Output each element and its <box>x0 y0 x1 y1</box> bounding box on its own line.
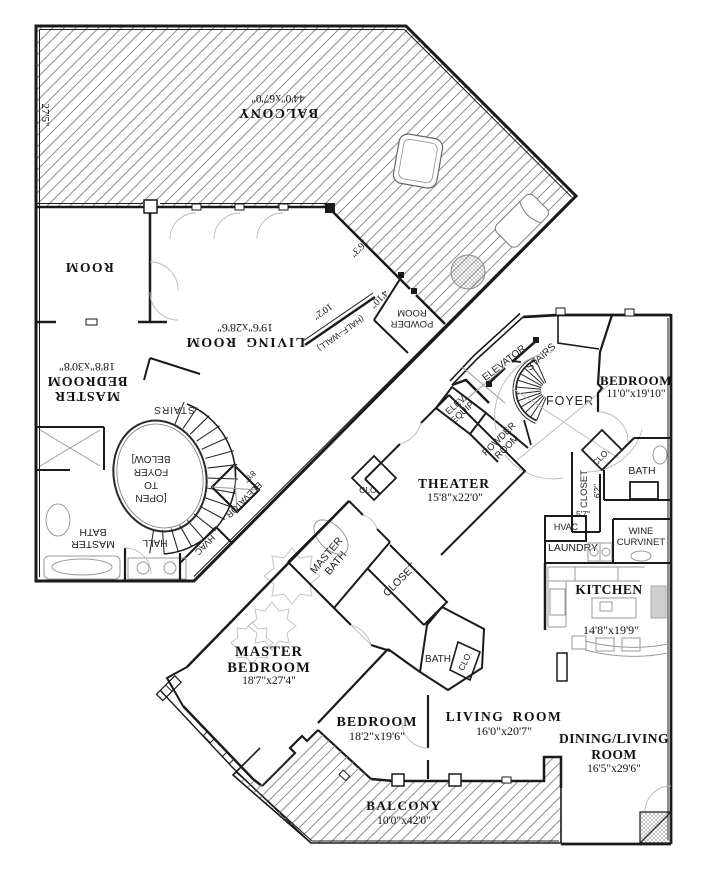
svg-text:16'0"x20'7": 16'0"x20'7" <box>476 724 532 738</box>
svg-text:ROOM: ROOM <box>397 307 427 318</box>
svg-text:10'0"x42'0": 10'0"x42'0" <box>377 815 431 827</box>
svg-text:18'7"x27'4": 18'7"x27'4" <box>242 675 296 687</box>
svg-text:CURVINET: CURVINET <box>617 537 666 548</box>
svg-text:BEDROOM: BEDROOM <box>227 660 311 676</box>
svg-text:ROOM: ROOM <box>64 260 114 275</box>
svg-text:5'7": 5'7" <box>576 509 590 519</box>
svg-text:15'8"x22'0": 15'8"x22'0" <box>427 490 483 504</box>
svg-text:BEDROOM: BEDROOM <box>47 373 128 388</box>
svg-text:18'8"x30'8": 18'8"x30'8" <box>59 360 115 374</box>
svg-text:CLOSET: CLOSET <box>579 470 590 508</box>
svg-text:BATH: BATH <box>628 465 655 477</box>
svg-text:HVAC: HVAC <box>554 522 579 532</box>
svg-text:MASTER: MASTER <box>54 388 120 403</box>
svg-text:6'2": 6'2" <box>592 484 602 498</box>
svg-text:BALCONY: BALCONY <box>238 105 319 120</box>
svg-text:LIVING ROOM: LIVING ROOM <box>446 709 562 724</box>
svg-text:ROOM: ROOM <box>591 747 637 762</box>
svg-text:LIVING ROOM: LIVING ROOM <box>185 334 305 349</box>
svg-text:14'8"x19'9": 14'8"x19'9" <box>583 623 639 637</box>
svg-text:KITCHEN: KITCHEN <box>575 582 642 597</box>
svg-text:11'0"x19'10": 11'0"x19'10" <box>606 388 665 400</box>
svg-text:BEDROOM: BEDROOM <box>337 715 418 730</box>
svg-text:FOYER: FOYER <box>546 394 594 408</box>
svg-text:DINING/LIVING: DINING/LIVING <box>559 731 669 746</box>
svg-text:STAIRS: STAIRS <box>153 404 194 415</box>
svg-text:19'6"x28'6": 19'6"x28'6" <box>217 321 273 335</box>
svg-text:TO: TO <box>144 479 158 490</box>
svg-text:BELOW]: BELOW] <box>131 453 170 464</box>
svg-text:27'5": 27'5" <box>39 104 51 127</box>
svg-text:HALL: HALL <box>142 537 167 548</box>
svg-text:CLO.: CLO. <box>359 485 379 495</box>
svg-text:BATH: BATH <box>79 526 106 538</box>
svg-text:MASTER: MASTER <box>235 644 303 660</box>
svg-text:MASTER: MASTER <box>71 538 115 550</box>
svg-text:BEDROOM: BEDROOM <box>600 373 672 388</box>
svg-text:THEATER: THEATER <box>418 476 490 491</box>
svg-text:BATH: BATH <box>425 654 451 665</box>
svg-text:FOYER: FOYER <box>134 466 168 477</box>
svg-text:WINE: WINE <box>629 526 654 537</box>
svg-text:16'5"x29'6": 16'5"x29'6" <box>587 763 641 775</box>
svg-text:18'2"x19'6": 18'2"x19'6" <box>349 729 405 743</box>
svg-text:44'0"x67'0": 44'0"x67'0" <box>251 92 305 104</box>
svg-text:[OPEN: [OPEN <box>135 492 166 503</box>
svg-text:POWDER: POWDER <box>390 318 433 329</box>
svg-text:BALCONY: BALCONY <box>366 798 442 813</box>
